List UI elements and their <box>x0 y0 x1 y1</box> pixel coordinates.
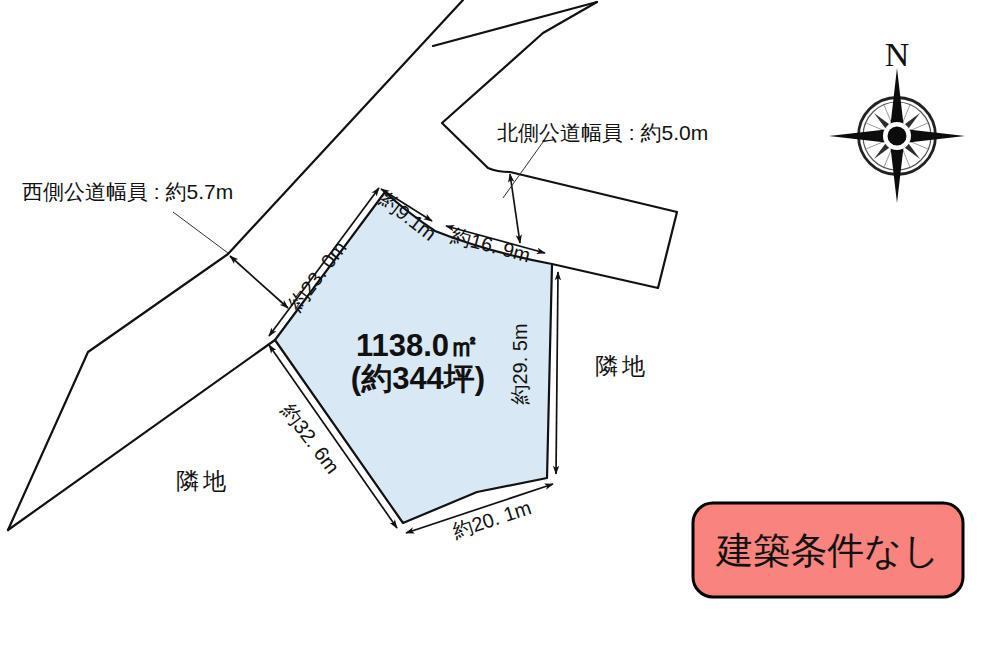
dim-arrow-north-road-width-5-0m <box>510 174 520 243</box>
west-road-width-label: 西側公道幅員 : 約5.7m <box>22 180 233 203</box>
lot-area-tsubo-label: (約344坪) <box>351 361 485 396</box>
west-road-upper-edge <box>433 2 597 46</box>
lot-area-sqm-label: 1138.0㎡ <box>356 328 480 363</box>
neighbor-label-right: 隣地 <box>595 353 649 379</box>
dim-label-south: 約20. 1m <box>449 496 534 542</box>
plot-plan-canvas: 約23. 0m 約9.1m 約16. 9m 約29. 5m 約32. 6m 約2… <box>0 0 999 663</box>
west-road-east-edge <box>8 340 275 530</box>
building-conditions-badge: 建築条件なし <box>693 503 963 597</box>
dim-label-east: 約29. 5m <box>509 323 531 405</box>
land-plot-diagram: 約23. 0m 約9.1m 約16. 9m 約29. 5m 約32. 6m 約2… <box>0 0 999 663</box>
neighbor-label-left: 隣地 <box>176 468 230 494</box>
dim-arrow-east-29-5m <box>556 272 558 474</box>
dim-arrow-west-road-width-5-7m <box>230 256 288 308</box>
compass-rose-icon: N <box>829 36 965 203</box>
north-road-label-leader-line <box>503 142 543 198</box>
west-road-label-leader-line <box>173 212 228 253</box>
building-conditions-badge-label: 建築条件なし <box>715 530 940 571</box>
compass-north-letter: N <box>885 36 910 73</box>
north-road-width-label: 北側公道幅員 : 約5.0m <box>497 121 708 144</box>
